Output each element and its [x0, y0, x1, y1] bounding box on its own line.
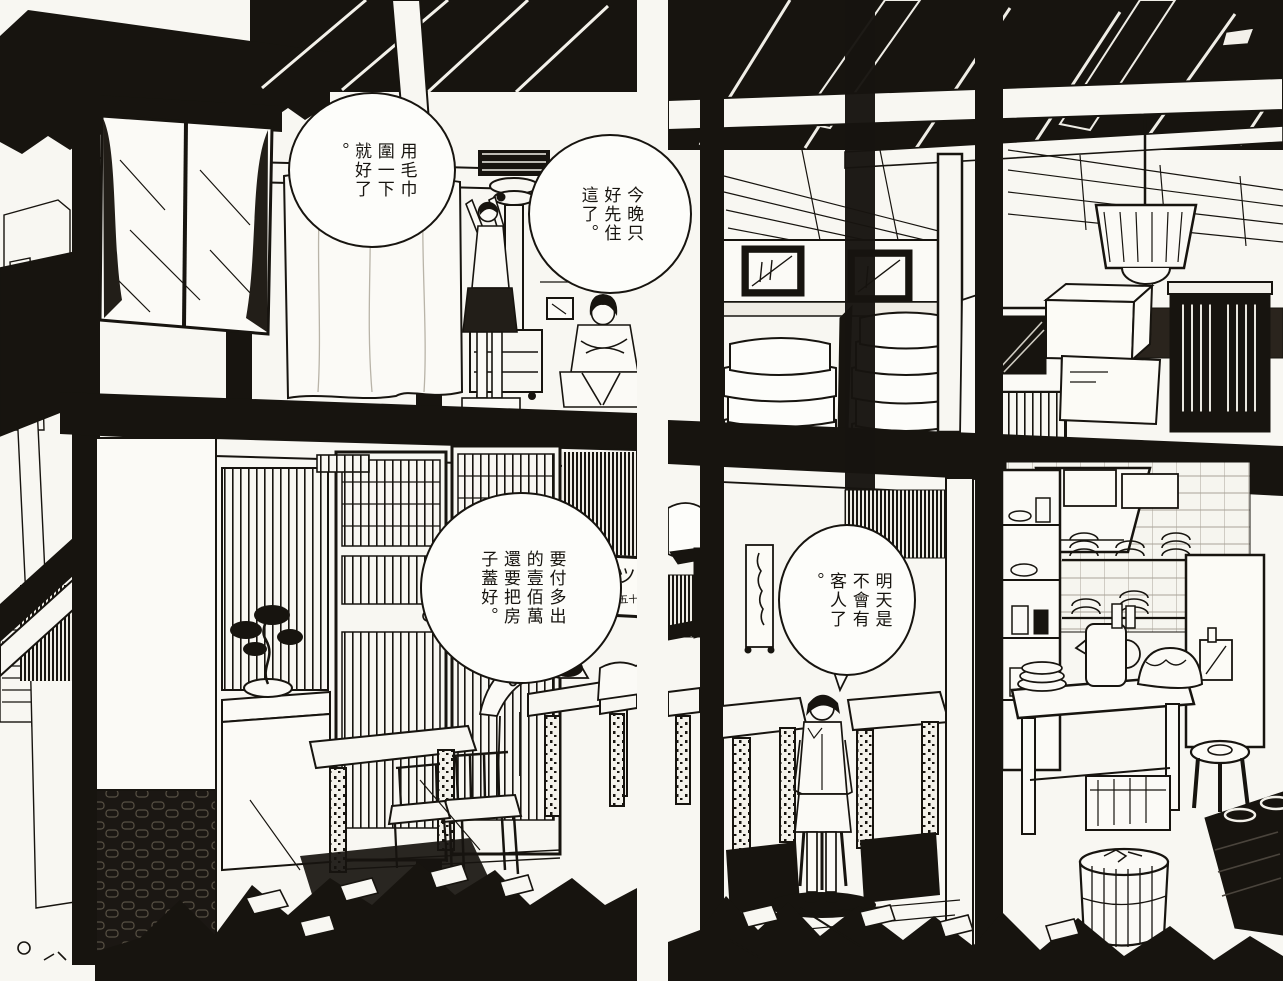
cabinet-fridge — [1186, 555, 1264, 747]
hanging-scroll — [745, 545, 774, 653]
transom-vent — [317, 455, 369, 472]
door-jamb — [946, 478, 973, 956]
dark-hatch-wall — [562, 452, 637, 564]
white-post — [938, 154, 962, 432]
hanging-sheet — [284, 175, 462, 398]
wardrobe — [1168, 282, 1272, 432]
jug — [1086, 624, 1126, 686]
window — [100, 116, 272, 334]
side-wall — [96, 438, 216, 790]
bubble-text: 今晚只 好先住 這了。 — [576, 186, 644, 243]
speech-bubble-stay: 今晚只 好先住 這了。 — [528, 134, 692, 294]
slat-screen — [222, 468, 328, 690]
manga-spread: 用毛巾 圍一下 就好了 。 要付多出 的壹佰萬 還要把房 子蓋好。 カツ丼 八百… — [0, 0, 1283, 981]
